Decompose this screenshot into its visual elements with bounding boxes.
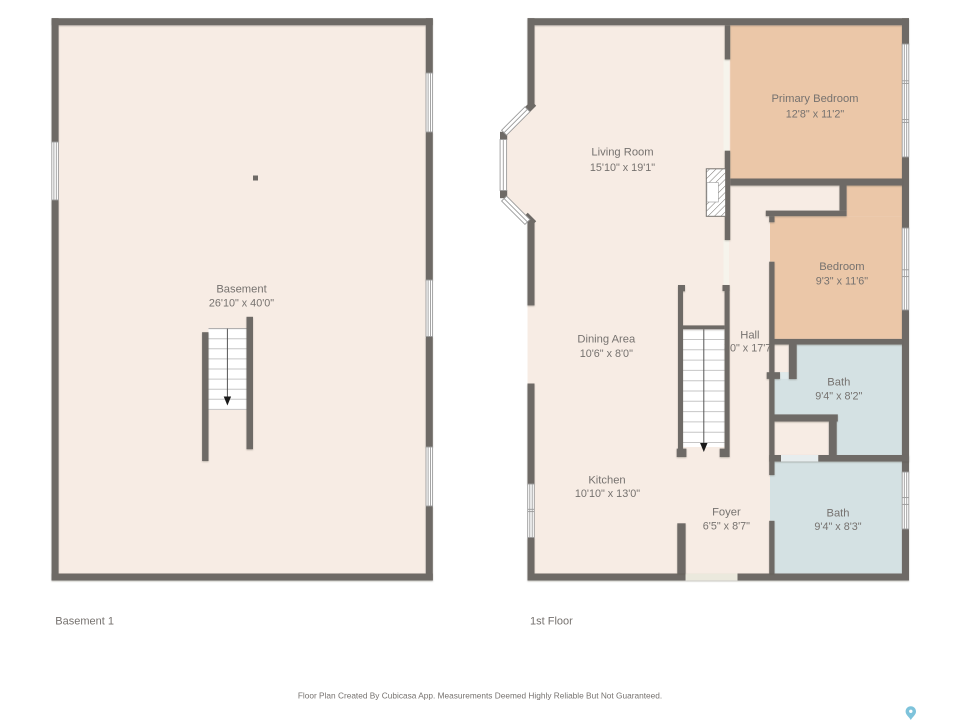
svg-text:26'10" x 40'0": 26'10" x 40'0" bbox=[209, 298, 274, 310]
svg-text:Floor Plan Created By Cubicasa: Floor Plan Created By Cubicasa App. Meas… bbox=[298, 691, 662, 701]
svg-text:Kitchen: Kitchen bbox=[588, 474, 625, 486]
svg-text:15'10" x 19'1": 15'10" x 19'1" bbox=[590, 162, 655, 174]
svg-text:9'4" x 8'2": 9'4" x 8'2" bbox=[815, 391, 862, 403]
svg-text:Bath: Bath bbox=[826, 508, 849, 520]
svg-text:Bedroom: Bedroom bbox=[819, 261, 864, 273]
svg-text:7'0" x 17'7": 7'0" x 17'7" bbox=[722, 342, 775, 354]
svg-text:6'5" x 8'7": 6'5" x 8'7" bbox=[703, 521, 750, 533]
svg-text:12'8" x 11'2": 12'8" x 11'2" bbox=[786, 109, 845, 121]
svg-text:9'4" x 8'3": 9'4" x 8'3" bbox=[814, 521, 861, 533]
svg-text:Living Room: Living Room bbox=[591, 146, 653, 158]
svg-text:Dining Area: Dining Area bbox=[577, 334, 636, 346]
svg-text:10'10" x 13'0": 10'10" x 13'0" bbox=[575, 488, 640, 500]
svg-text:10'6" x 8'0": 10'6" x 8'0" bbox=[580, 348, 633, 360]
svg-text:Foyer: Foyer bbox=[712, 507, 741, 519]
svg-text:Primary Bedroom: Primary Bedroom bbox=[771, 93, 858, 105]
svg-text:Bath: Bath bbox=[827, 377, 850, 389]
svg-text:1st Floor: 1st Floor bbox=[530, 616, 573, 628]
svg-text:Basement: Basement bbox=[216, 284, 267, 296]
svg-text:9'3" x 11'6": 9'3" x 11'6" bbox=[816, 276, 869, 288]
svg-text:Hall: Hall bbox=[740, 329, 759, 341]
svg-text:Basement 1: Basement 1 bbox=[55, 616, 114, 628]
